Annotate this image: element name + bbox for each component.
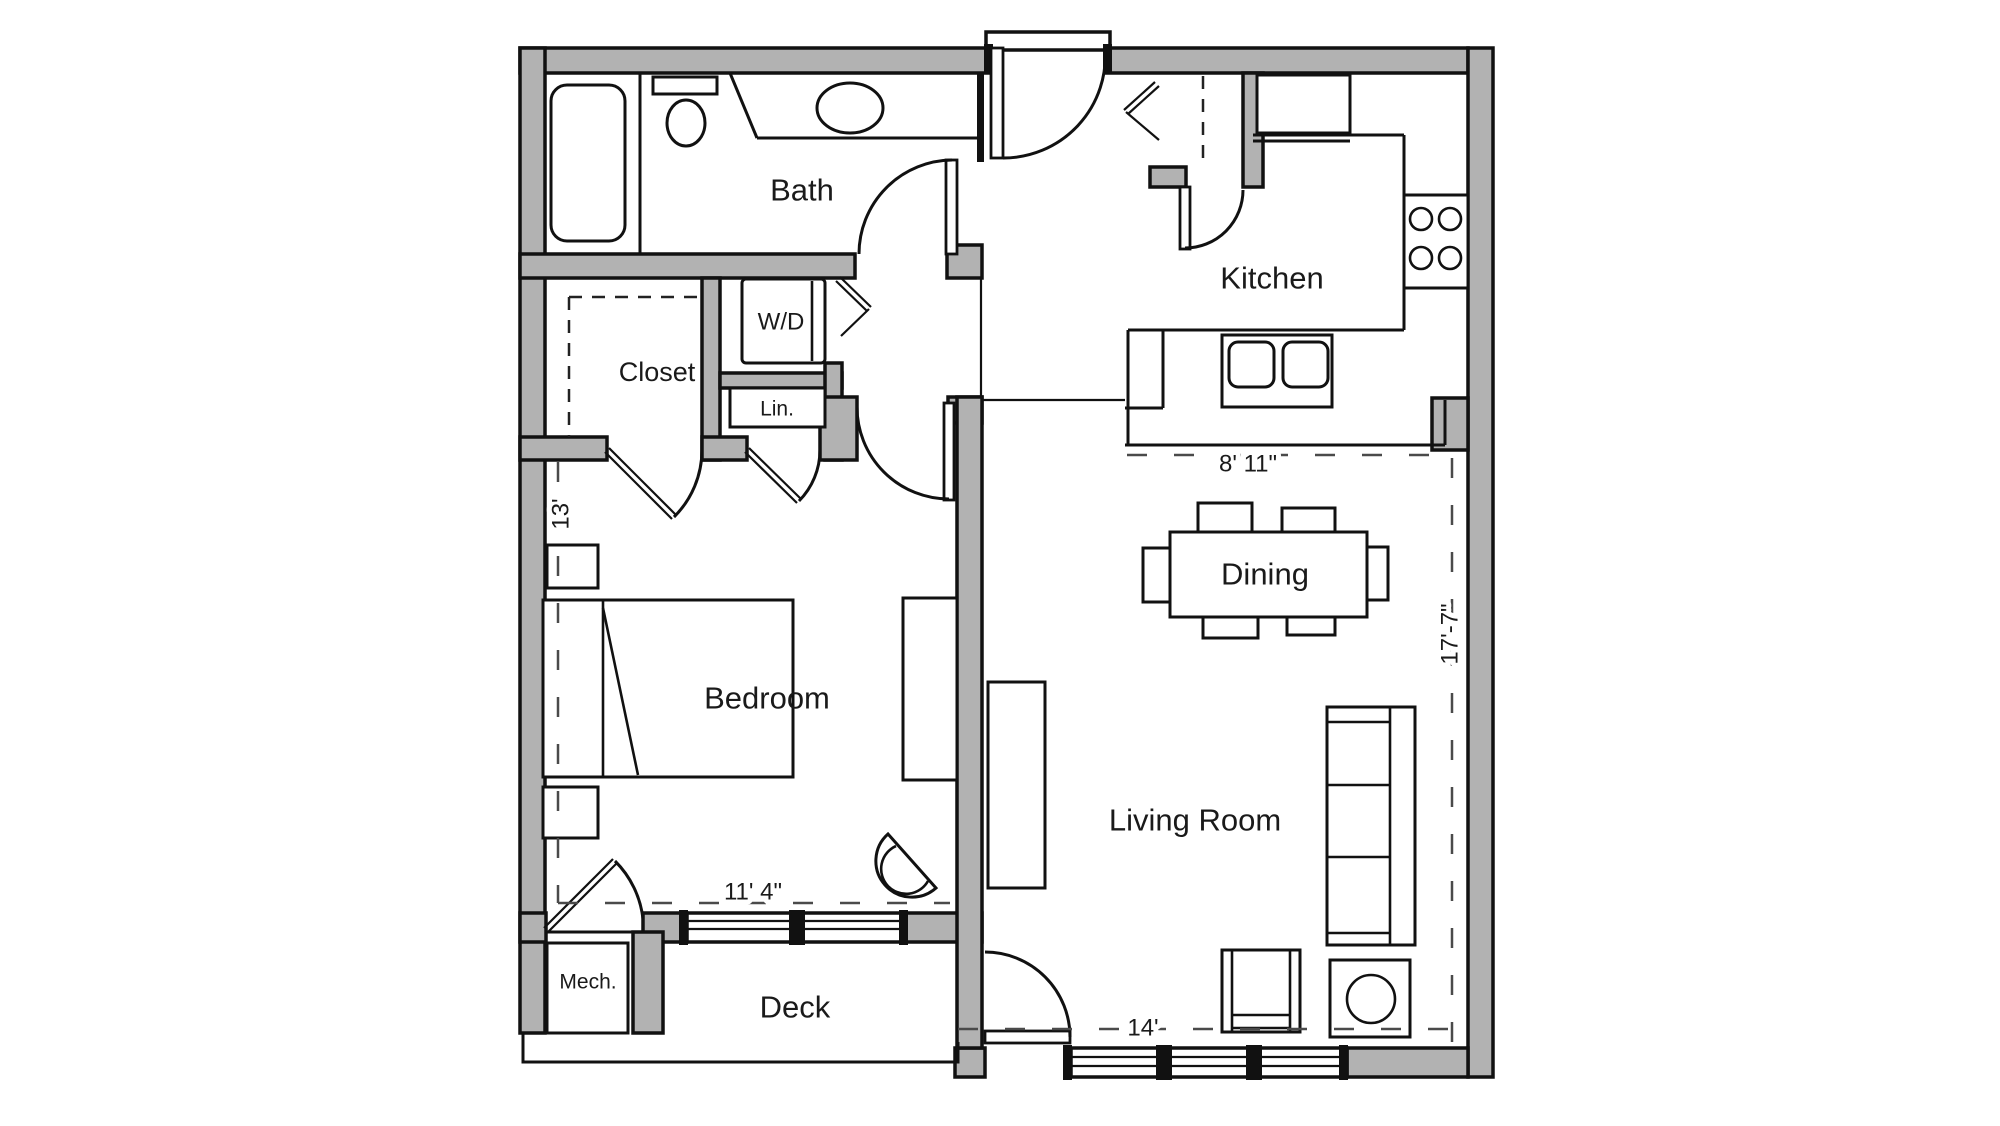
washer-dryer-label: W/D <box>758 309 805 336</box>
linen-door <box>745 448 820 503</box>
front-door <box>991 48 1105 158</box>
wall-segment <box>520 437 607 460</box>
closet-door <box>605 448 702 519</box>
door-swing-icon <box>859 160 952 254</box>
stove-icon <box>1404 195 1468 288</box>
end-table-icon <box>1330 960 1410 1037</box>
deck-label: Deck <box>760 990 831 1025</box>
mech-label: Mech. <box>559 971 616 994</box>
kitchen-label: Kitchen <box>1220 261 1323 296</box>
door-swing-icon <box>985 952 1070 1037</box>
window-jamb <box>679 910 688 945</box>
door-swing-icon <box>799 450 820 501</box>
window-jamb <box>1339 1045 1348 1080</box>
bedroom-width-dim: 11' 4" <box>724 879 782 906</box>
refrigerator-icon <box>1257 75 1350 133</box>
bath-fixtures <box>551 73 977 254</box>
door-swing-icon <box>674 450 702 517</box>
armchair-icon <box>1222 950 1300 1032</box>
bedroom-furniture <box>543 545 957 897</box>
wall-segment <box>977 73 984 162</box>
coat-closet-bifold-door <box>1124 82 1159 140</box>
door-swing-icon <box>857 407 949 499</box>
nightstand-icon <box>547 545 598 588</box>
bedroom-door <box>857 403 954 500</box>
nightstand-icon <box>543 787 598 838</box>
wall-segment <box>957 397 982 1048</box>
wall-segment <box>520 48 545 1033</box>
door-swing-icon <box>615 861 643 919</box>
bedroom-chair-icon <box>876 834 936 897</box>
dining-chair-icon <box>1367 547 1388 600</box>
entry-recess <box>986 32 1110 50</box>
wall-segment <box>520 254 855 278</box>
washer-dryer-bifold-door <box>836 277 871 336</box>
window-jamb <box>1063 1045 1072 1080</box>
window-mullion <box>789 910 805 945</box>
floor-plan-canvas: Bath Kitchen Closet W/D Lin. Bedroom Din… <box>0 0 2000 1126</box>
window-mullion <box>1246 1045 1262 1080</box>
vanity-counter <box>730 73 757 138</box>
linen-label: Lin. <box>760 398 794 421</box>
dining-chair-icon <box>1143 548 1170 602</box>
bath-door <box>859 160 957 254</box>
bath-label: Bath <box>770 173 834 208</box>
living-height-dim: 17'-7" <box>1437 603 1464 664</box>
wall-segment <box>702 437 747 460</box>
floor-plan-drawing: Bath Kitchen Closet W/D Lin. Bedroom Din… <box>0 0 2000 1126</box>
living-width-dim: 14' <box>1127 1015 1158 1042</box>
window-jamb <box>899 910 908 945</box>
wall-segment <box>1468 48 1493 1077</box>
dresser-icon <box>903 598 957 780</box>
door-swing-icon <box>1185 190 1243 248</box>
wall-segment <box>1432 398 1468 450</box>
kitchen-door <box>1180 187 1243 249</box>
bathtub-icon <box>551 85 625 241</box>
window-mullion <box>1156 1045 1172 1080</box>
living-room-window <box>1063 1045 1348 1080</box>
bedroom-window <box>679 910 908 945</box>
wall-segment <box>520 913 546 942</box>
door-swing-icon <box>1003 48 1105 158</box>
toilet-bowl-icon <box>667 100 705 146</box>
wall-segment <box>702 278 720 460</box>
bedroom-label: Bedroom <box>704 681 830 716</box>
deck-outline <box>523 1033 958 1062</box>
wall-segment <box>1347 1048 1468 1077</box>
closet-label: Closet <box>619 357 696 387</box>
dining-label: Dining <box>1221 557 1309 592</box>
sink-basin-icon <box>1229 342 1274 387</box>
sink-basin-icon <box>1283 342 1328 387</box>
tv-console-icon <box>988 682 1045 888</box>
sofa-icon <box>1327 707 1415 945</box>
wall-segment <box>1150 167 1186 187</box>
dining-chair-icon <box>1282 508 1335 532</box>
bedroom-depth-dim: 13' <box>548 498 575 529</box>
dining-chair-icon <box>1287 617 1335 635</box>
deck-area <box>523 932 958 1062</box>
wall-segment <box>633 932 663 1033</box>
bath-sink-icon <box>817 83 883 133</box>
living-room-label: Living Room <box>1109 803 1281 838</box>
wall-segment <box>1105 48 1468 73</box>
dining-chair-icon <box>1203 617 1258 638</box>
dining-chair-icon <box>1198 503 1252 532</box>
toilet-tank-icon <box>653 77 717 94</box>
wall-segment <box>520 48 993 73</box>
kitchen-width-dim: 8' 11" <box>1219 451 1277 478</box>
